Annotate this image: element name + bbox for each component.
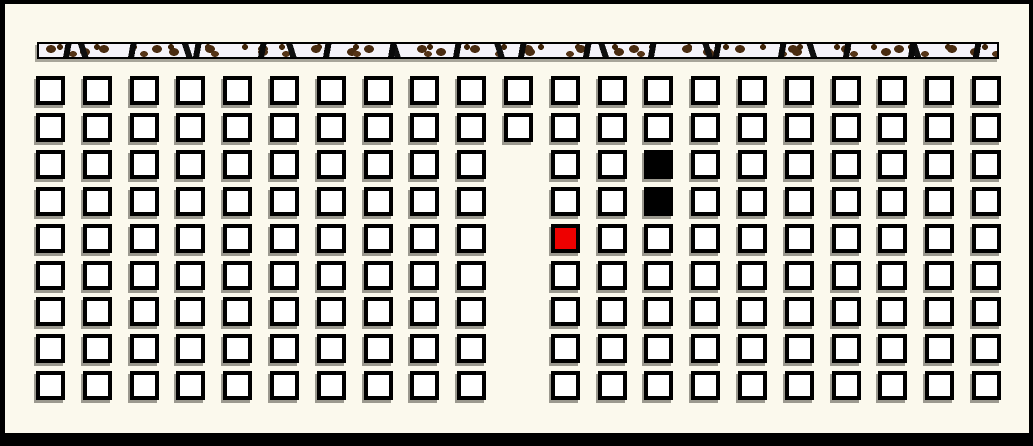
seat-r7c2[interactable] xyxy=(83,297,112,326)
seat-r5c13[interactable] xyxy=(598,224,627,253)
seat-r3c8[interactable] xyxy=(364,150,393,179)
seat-r7c14[interactable] xyxy=(644,297,673,326)
seat-r7c1[interactable] xyxy=(36,297,65,326)
seat-r3c14-occupied[interactable] xyxy=(644,150,673,179)
seat-r3c3[interactable] xyxy=(130,150,159,179)
seat-r5c12-selected[interactable] xyxy=(551,224,580,253)
seat-r2c14[interactable] xyxy=(644,113,673,142)
seat-r8c17[interactable] xyxy=(785,334,814,363)
seat-r7c18[interactable] xyxy=(832,297,861,326)
seat-r2c4[interactable] xyxy=(176,113,205,142)
seat-r5c3[interactable] xyxy=(130,224,159,253)
seat-r1c18[interactable] xyxy=(832,76,861,105)
seat-r6c18[interactable] xyxy=(832,261,861,290)
seat-r1c5[interactable] xyxy=(223,76,252,105)
seat-r3c17[interactable] xyxy=(785,150,814,179)
seat-r7c21[interactable] xyxy=(972,297,1001,326)
seat-r4c14-occupied[interactable] xyxy=(644,187,673,216)
seat-r6c16[interactable] xyxy=(738,261,767,290)
seat-r6c6[interactable] xyxy=(270,261,299,290)
seat-r4c12[interactable] xyxy=(551,187,580,216)
seat-r9c10[interactable] xyxy=(457,371,486,400)
seat-r4c19[interactable] xyxy=(878,187,907,216)
seat-r3c10[interactable] xyxy=(457,150,486,179)
seat-r2c13[interactable] xyxy=(598,113,627,142)
seat-r4c18[interactable] xyxy=(832,187,861,216)
seat-r9c16[interactable] xyxy=(738,371,767,400)
seat-r7c16[interactable] xyxy=(738,297,767,326)
seat-r1c15[interactable] xyxy=(691,76,720,105)
seat-r7c4[interactable] xyxy=(176,297,205,326)
seat-r6c14[interactable] xyxy=(644,261,673,290)
seat-r3c1[interactable] xyxy=(36,150,65,179)
seat-r3c13[interactable] xyxy=(598,150,627,179)
seat-r5c16[interactable] xyxy=(738,224,767,253)
seat-r9c19[interactable] xyxy=(878,371,907,400)
seat-r7c5[interactable] xyxy=(223,297,252,326)
seat-r5c21[interactable] xyxy=(972,224,1001,253)
seat-r4c1[interactable] xyxy=(36,187,65,216)
seat-r2c2[interactable] xyxy=(83,113,112,142)
seat-r1c19[interactable] xyxy=(878,76,907,105)
seat-r3c20[interactable] xyxy=(925,150,954,179)
seat-r7c9[interactable] xyxy=(410,297,439,326)
seat-r2c16[interactable] xyxy=(738,113,767,142)
seat-r4c16[interactable] xyxy=(738,187,767,216)
seat-r7c19[interactable] xyxy=(878,297,907,326)
seat-r5c19[interactable] xyxy=(878,224,907,253)
seat-r6c3[interactable] xyxy=(130,261,159,290)
seat-r4c3[interactable] xyxy=(130,187,159,216)
seat-r5c4[interactable] xyxy=(176,224,205,253)
seat-r5c20[interactable] xyxy=(925,224,954,253)
seat-r1c13[interactable] xyxy=(598,76,627,105)
seat-r1c4[interactable] xyxy=(176,76,205,105)
seat-r8c21[interactable] xyxy=(972,334,1001,363)
seat-r4c4[interactable] xyxy=(176,187,205,216)
seat-r1c9[interactable] xyxy=(410,76,439,105)
seat-r1c8[interactable] xyxy=(364,76,393,105)
seat-r2c12[interactable] xyxy=(551,113,580,142)
seat-r1c10[interactable] xyxy=(457,76,486,105)
seat-r8c20[interactable] xyxy=(925,334,954,363)
seat-r9c20[interactable] xyxy=(925,371,954,400)
seat-r2c21[interactable] xyxy=(972,113,1001,142)
seat-r8c16[interactable] xyxy=(738,334,767,363)
seat-r9c15[interactable] xyxy=(691,371,720,400)
seat-r9c5[interactable] xyxy=(223,371,252,400)
seat-r7c10[interactable] xyxy=(457,297,486,326)
seat-r5c14[interactable] xyxy=(644,224,673,253)
seat-r9c18[interactable] xyxy=(832,371,861,400)
seat-r9c13[interactable] xyxy=(598,371,627,400)
seat-r9c4[interactable] xyxy=(176,371,205,400)
seat-r7c13[interactable] xyxy=(598,297,627,326)
seat-r2c8[interactable] xyxy=(364,113,393,142)
seat-r8c2[interactable] xyxy=(83,334,112,363)
simulation-view xyxy=(0,0,1033,446)
seat-r5c1[interactable] xyxy=(36,224,65,253)
seat-r8c12[interactable] xyxy=(551,334,580,363)
seat-r5c8[interactable] xyxy=(364,224,393,253)
seat-r8c8[interactable] xyxy=(364,334,393,363)
seat-r4c21[interactable] xyxy=(972,187,1001,216)
seat-r2c18[interactable] xyxy=(832,113,861,142)
seat-r2c1[interactable] xyxy=(36,113,65,142)
seat-r7c20[interactable] xyxy=(925,297,954,326)
seat-r5c6[interactable] xyxy=(270,224,299,253)
seat-r6c1[interactable] xyxy=(36,261,65,290)
seat-r3c6[interactable] xyxy=(270,150,299,179)
seat-r4c17[interactable] xyxy=(785,187,814,216)
seat-r7c3[interactable] xyxy=(130,297,159,326)
seat-r2c5[interactable] xyxy=(223,113,252,142)
seat-r9c17[interactable] xyxy=(785,371,814,400)
seat-r9c2[interactable] xyxy=(83,371,112,400)
seat-r5c15[interactable] xyxy=(691,224,720,253)
seat-r7c7[interactable] xyxy=(317,297,346,326)
seat-r8c7[interactable] xyxy=(317,334,346,363)
seat-r6c21[interactable] xyxy=(972,261,1001,290)
seat-r6c4[interactable] xyxy=(176,261,205,290)
seat-r3c2[interactable] xyxy=(83,150,112,179)
seat-r9c21[interactable] xyxy=(972,371,1001,400)
seat-r6c5[interactable] xyxy=(223,261,252,290)
seat-r4c9[interactable] xyxy=(410,187,439,216)
seat-r9c12[interactable] xyxy=(551,371,580,400)
seat-r3c9[interactable] xyxy=(410,150,439,179)
seat-r7c12[interactable] xyxy=(551,297,580,326)
seat-r6c2[interactable] xyxy=(83,261,112,290)
seat-r6c13[interactable] xyxy=(598,261,627,290)
seat-r4c5[interactable] xyxy=(223,187,252,216)
seat-r8c18[interactable] xyxy=(832,334,861,363)
seat-r4c6[interactable] xyxy=(270,187,299,216)
seat-r1c6[interactable] xyxy=(270,76,299,105)
seat-r1c12[interactable] xyxy=(551,76,580,105)
seat-r3c15[interactable] xyxy=(691,150,720,179)
seat-r3c5[interactable] xyxy=(223,150,252,179)
seat-r8c4[interactable] xyxy=(176,334,205,363)
seat-r6c9[interactable] xyxy=(410,261,439,290)
seat-r8c10[interactable] xyxy=(457,334,486,363)
seat-r1c20[interactable] xyxy=(925,76,954,105)
seat-r3c12[interactable] xyxy=(551,150,580,179)
seat-r7c17[interactable] xyxy=(785,297,814,326)
seat-r9c6[interactable] xyxy=(270,371,299,400)
seat-r5c7[interactable] xyxy=(317,224,346,253)
seat-r2c11[interactable] xyxy=(504,113,533,142)
seat-r5c17[interactable] xyxy=(785,224,814,253)
seat-r4c10[interactable] xyxy=(457,187,486,216)
seat-r4c8[interactable] xyxy=(364,187,393,216)
seat-r7c8[interactable] xyxy=(364,297,393,326)
seat-r6c8[interactable] xyxy=(364,261,393,290)
seat-r8c3[interactable] xyxy=(130,334,159,363)
seat-r8c13[interactable] xyxy=(598,334,627,363)
seat-r4c7[interactable] xyxy=(317,187,346,216)
seat-r3c21[interactable] xyxy=(972,150,1001,179)
seat-r8c1[interactable] xyxy=(36,334,65,363)
seat-r7c6[interactable] xyxy=(270,297,299,326)
seat-r3c18[interactable] xyxy=(832,150,861,179)
seat-r2c17[interactable] xyxy=(785,113,814,142)
seat-r1c3[interactable] xyxy=(130,76,159,105)
seat-r1c7[interactable] xyxy=(317,76,346,105)
seat-r8c14[interactable] xyxy=(644,334,673,363)
seat-r6c15[interactable] xyxy=(691,261,720,290)
seat-r9c7[interactable] xyxy=(317,371,346,400)
seat-r2c6[interactable] xyxy=(270,113,299,142)
seat-r5c5[interactable] xyxy=(223,224,252,253)
seat-r8c9[interactable] xyxy=(410,334,439,363)
seat-r9c3[interactable] xyxy=(130,371,159,400)
seat-r3c7[interactable] xyxy=(317,150,346,179)
seat-r8c19[interactable] xyxy=(878,334,907,363)
seat-r9c8[interactable] xyxy=(364,371,393,400)
seat-r8c15[interactable] xyxy=(691,334,720,363)
seat-r2c3[interactable] xyxy=(130,113,159,142)
seat-r4c20[interactable] xyxy=(925,187,954,216)
seat-r8c5[interactable] xyxy=(223,334,252,363)
seat-r5c10[interactable] xyxy=(457,224,486,253)
seat-r2c7[interactable] xyxy=(317,113,346,142)
seat-r4c2[interactable] xyxy=(83,187,112,216)
seat-r3c4[interactable] xyxy=(176,150,205,179)
seat-r4c15[interactable] xyxy=(691,187,720,216)
seat-r5c18[interactable] xyxy=(832,224,861,253)
seat-r2c10[interactable] xyxy=(457,113,486,142)
seat-r1c1[interactable] xyxy=(36,76,65,105)
seat-r6c17[interactable] xyxy=(785,261,814,290)
seat-r3c16[interactable] xyxy=(738,150,767,179)
seat-r5c9[interactable] xyxy=(410,224,439,253)
seat-r6c20[interactable] xyxy=(925,261,954,290)
seat-r9c9[interactable] xyxy=(410,371,439,400)
seat-r9c14[interactable] xyxy=(644,371,673,400)
seat-r6c7[interactable] xyxy=(317,261,346,290)
seat-r1c17[interactable] xyxy=(785,76,814,105)
seat-r6c19[interactable] xyxy=(878,261,907,290)
seat-r1c21[interactable] xyxy=(972,76,1001,105)
seat-r2c9[interactable] xyxy=(410,113,439,142)
seat-r1c2[interactable] xyxy=(83,76,112,105)
seat-r2c15[interactable] xyxy=(691,113,720,142)
seat-r3c19[interactable] xyxy=(878,150,907,179)
seat-r9c1[interactable] xyxy=(36,371,65,400)
seat-r7c15[interactable] xyxy=(691,297,720,326)
seat-r5c2[interactable] xyxy=(83,224,112,253)
seat-r2c20[interactable] xyxy=(925,113,954,142)
seat-r2c19[interactable] xyxy=(878,113,907,142)
seat-r4c13[interactable] xyxy=(598,187,627,216)
front-wall-strip xyxy=(37,42,999,59)
seat-r8c6[interactable] xyxy=(270,334,299,363)
seat-r1c16[interactable] xyxy=(738,76,767,105)
seat-r6c10[interactable] xyxy=(457,261,486,290)
seat-r1c11[interactable] xyxy=(504,76,533,105)
seat-r6c12[interactable] xyxy=(551,261,580,290)
seat-r1c14[interactable] xyxy=(644,76,673,105)
